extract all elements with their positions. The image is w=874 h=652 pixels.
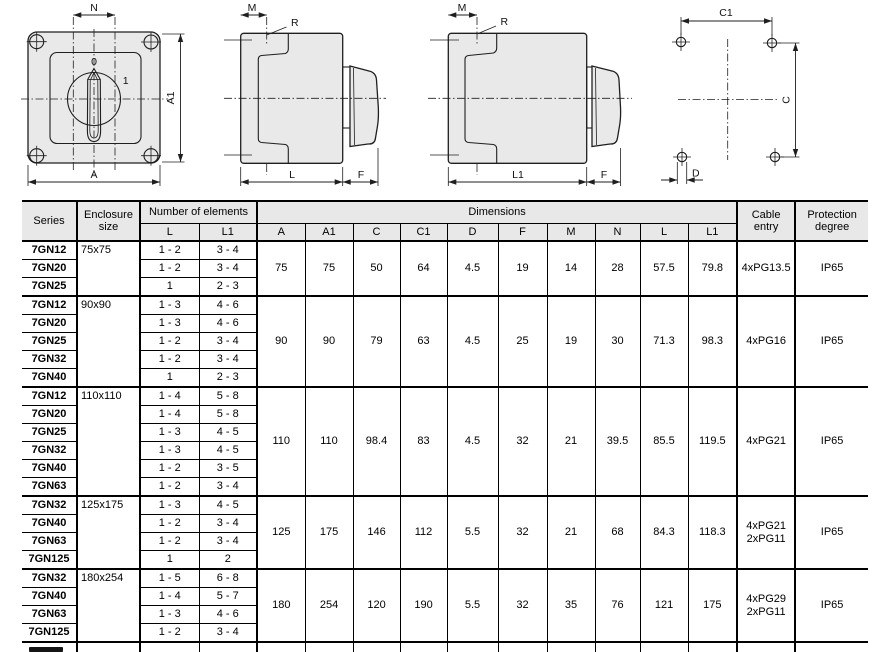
col-header-d: D (447, 224, 498, 242)
side-view-l1-drawing: M R L1 F (422, 2, 652, 194)
dim-l-cell: 71.3 (640, 296, 688, 387)
dim-c1-cell: 64 (400, 241, 447, 296)
series-cell: 7GN32 (22, 569, 77, 588)
dim-a-cell: 110 (257, 387, 305, 496)
dim-l-cell: 84.3 (640, 496, 688, 569)
position-0-label: 0 (91, 56, 97, 68)
side-l-dim-l-label: L (289, 169, 295, 181)
series-cell: 7GN25 (22, 424, 77, 442)
series-cell: 7GN40 (22, 460, 77, 478)
dim-a-cell: 125 (257, 496, 305, 569)
table-row: 7GN1290x901 - 34 - 6909079634.525193071.… (22, 296, 868, 315)
series-cell: 7GN32 (22, 496, 77, 515)
enclosure-size-cell: 75x75 (77, 241, 140, 296)
protection-degree-cell: IP65 (795, 496, 868, 569)
elements-l1-cell: 5 - 8 (199, 387, 257, 406)
dimensions-table: Series Enclosure size Number of elements… (22, 200, 868, 652)
elements-l1-cell: 3 - 4 (199, 533, 257, 551)
dim-f-cell: 32 (498, 569, 547, 642)
elements-l-cell: 1 (140, 278, 199, 297)
series-cell: 7GN63 (22, 606, 77, 624)
series-cell: 7GN32 (22, 442, 77, 460)
dim-c1-cell: 63 (400, 296, 447, 387)
cable-entry-cell: 4xPG13.5 (737, 241, 795, 296)
series-cell: 7GN12 (22, 387, 77, 406)
elements-l1-cell: 3 - 4 (199, 351, 257, 369)
series-cell: 7GN12 (22, 296, 77, 315)
series-cell: 7GN12 (22, 241, 77, 260)
dim-c-cell: 146 (353, 496, 400, 569)
dim-c1-cell: 83 (400, 387, 447, 496)
cable-entry-cell: 4xPG21 2xPG11 (737, 496, 795, 569)
side-l1-dim-m-label: M (458, 2, 467, 14)
enclosure-size-cell: 90x90 (77, 296, 140, 387)
dim-m-cell: 21 (547, 496, 595, 569)
col-header-dim-l1: L1 (688, 224, 737, 242)
dim-c1-cell: 190 (400, 569, 447, 642)
series-cell: 7GN40 (22, 369, 77, 388)
table-row: 7GN32125x1751 - 34 - 51251751461125.5322… (22, 496, 868, 515)
dim-d-cell: 4.5 (447, 296, 498, 387)
series-cell: 7GN125 (22, 624, 77, 643)
col-header-l: L (140, 224, 199, 242)
elements-l-cell: 1 - 4 (140, 387, 199, 406)
col-header-c1: C1 (400, 224, 447, 242)
table-header: Series Enclosure size Number of elements… (22, 201, 868, 241)
series-cell: 7GN32 (22, 351, 77, 369)
dim-m-cell: 19 (547, 296, 595, 387)
clipped-cell (22, 642, 77, 652)
elements-l-cell: 1 - 2 (140, 260, 199, 278)
col-header-a: A (257, 224, 305, 242)
series-cell: 7GN20 (22, 260, 77, 278)
dim-n-cell: 76 (595, 569, 640, 642)
col-header-cable-entry: Cable entry (737, 201, 795, 241)
series-cell: 7GN40 (22, 588, 77, 606)
elements-l1-cell: 3 - 4 (199, 241, 257, 260)
protection-degree-cell: IP65 (795, 569, 868, 642)
dim-l-cell: 57.5 (640, 241, 688, 296)
elements-l-cell: 1 - 3 (140, 442, 199, 460)
dim-a-cell: 75 (257, 241, 305, 296)
elements-l1-cell: 2 - 3 (199, 278, 257, 297)
dimensions-table-wrap: Series Enclosure size Number of elements… (22, 200, 868, 652)
dim-a1-cell: 75 (305, 241, 353, 296)
clipped-cell (447, 642, 498, 652)
elements-l1-cell: 4 - 5 (199, 442, 257, 460)
clipped-cell (77, 642, 140, 652)
clipped-cell (640, 642, 688, 652)
elements-l1-cell: 3 - 4 (199, 478, 257, 497)
elements-l1-cell: 4 - 6 (199, 296, 257, 315)
series-cell: 7GN25 (22, 278, 77, 297)
elements-l-cell: 1 - 2 (140, 515, 199, 533)
enclosure-size-cell: 110x110 (77, 387, 140, 496)
dim-a1-cell: 110 (305, 387, 353, 496)
dim-m-cell: 14 (547, 241, 595, 296)
dim-n-cell: 68 (595, 496, 640, 569)
elements-l-cell: 1 (140, 369, 199, 388)
series-cell: 7GN20 (22, 315, 77, 333)
clipped-cell (595, 642, 640, 652)
side-l-dim-f-label: F (358, 169, 364, 181)
series-cell: 7GN63 (22, 533, 77, 551)
clipped-cell (737, 642, 795, 652)
elements-l-cell: 1 - 2 (140, 241, 199, 260)
series-cell: 7GN20 (22, 406, 77, 424)
elements-l1-cell: 3 - 4 (199, 515, 257, 533)
dim-l1-cell: 118.3 (688, 496, 737, 569)
dim-c-cell: 50 (353, 241, 400, 296)
elements-l-cell: 1 - 2 (140, 478, 199, 497)
col-header-number-of-elements: Number of elements (140, 201, 257, 224)
drill-dim-c1-label: C1 (719, 7, 733, 19)
dim-l1-cell: 175 (688, 569, 737, 642)
dim-c-cell: 98.4 (353, 387, 400, 496)
series-cell: 7GN40 (22, 515, 77, 533)
clipped-cell (400, 642, 447, 652)
elements-l-cell: 1 - 2 (140, 460, 199, 478)
elements-l-cell: 1 - 3 (140, 424, 199, 442)
dim-l1-cell: 98.3 (688, 296, 737, 387)
clipped-cell (688, 642, 737, 652)
elements-l-cell: 1 - 4 (140, 406, 199, 424)
clipped-cell (140, 642, 199, 652)
cable-entry-cell: 4xPG29 2xPG11 (737, 569, 795, 642)
dim-f-cell: 32 (498, 496, 547, 569)
elements-l1-cell: 4 - 5 (199, 424, 257, 442)
dim-n-cell: 30 (595, 296, 640, 387)
clipped-cell (795, 642, 868, 652)
elements-l-cell: 1 - 3 (140, 296, 199, 315)
elements-l-cell: 1 - 2 (140, 351, 199, 369)
dim-f-cell: 32 (498, 387, 547, 496)
elements-l1-cell: 2 (199, 551, 257, 570)
elements-l1-cell: 6 - 8 (199, 569, 257, 588)
elements-l-cell: 1 - 3 (140, 496, 199, 515)
series-cell: 7GN25 (22, 333, 77, 351)
side-l1-radius-label: R (501, 16, 509, 28)
side-l1-dim-f-label: F (601, 169, 607, 181)
dim-a-cell: 90 (257, 296, 305, 387)
dim-a-cell: 180 (257, 569, 305, 642)
dim-a1-cell: 175 (305, 496, 353, 569)
table-row: 7GN12110x1101 - 45 - 811011098.4834.5322… (22, 387, 868, 406)
drilling-plan-drawing: C1 C D (652, 2, 874, 194)
col-header-series: Series (22, 201, 77, 241)
side-l-dim-m-label: M (248, 2, 257, 14)
col-header-enclosure-size: Enclosure size (77, 201, 140, 241)
dim-l-cell: 121 (640, 569, 688, 642)
series-cell: 7GN63 (22, 478, 77, 497)
side-view-l-drawing: M R L F (222, 2, 422, 194)
elements-l1-cell: 4 - 6 (199, 315, 257, 333)
elements-l1-cell: 3 - 4 (199, 260, 257, 278)
dim-f-cell: 19 (498, 241, 547, 296)
enclosure-size-cell: 180x254 (77, 569, 140, 642)
clipped-cell (547, 642, 595, 652)
clipped-partial-row (22, 642, 868, 652)
protection-degree-cell: IP65 (795, 387, 868, 496)
dim-a1-cell: 90 (305, 296, 353, 387)
elements-l-cell: 1 - 5 (140, 569, 199, 588)
col-header-c: C (353, 224, 400, 242)
dim-d-cell: 5.5 (447, 496, 498, 569)
elements-l-cell: 1 - 3 (140, 606, 199, 624)
col-header-f: F (498, 224, 547, 242)
dim-d-cell: 4.5 (447, 241, 498, 296)
position-1-label: 1 (123, 75, 129, 87)
clipped-cell (257, 642, 305, 652)
cable-entry-cell: 4xPG21 (737, 387, 795, 496)
col-header-dimensions: Dimensions (257, 201, 737, 224)
cable-entry-cell: 4xPG16 (737, 296, 795, 387)
series-cell: 7GN125 (22, 551, 77, 570)
front-view-drawing: N A A1 0 1 (18, 2, 218, 194)
clipped-cell (305, 642, 353, 652)
elements-l-cell: 1 - 4 (140, 588, 199, 606)
dim-n-cell: 28 (595, 241, 640, 296)
dim-c-cell: 79 (353, 296, 400, 387)
elements-l1-cell: 5 - 8 (199, 406, 257, 424)
dim-m-cell: 35 (547, 569, 595, 642)
clipped-cell (353, 642, 400, 652)
col-header-protection-degree: Protection degree (795, 201, 868, 241)
table-row: 7GN32180x2541 - 56 - 81802541201905.5323… (22, 569, 868, 588)
col-header-l1: L1 (199, 224, 257, 242)
elements-l1-cell: 5 - 7 (199, 588, 257, 606)
protection-degree-cell: IP65 (795, 296, 868, 387)
dim-f-cell: 25 (498, 296, 547, 387)
elements-l-cell: 1 - 2 (140, 333, 199, 351)
elements-l1-cell: 3 - 4 (199, 624, 257, 643)
side-l1-dim-l1-label: L1 (512, 169, 524, 181)
elements-l-cell: 1 - 3 (140, 315, 199, 333)
col-header-m: M (547, 224, 595, 242)
elements-l1-cell: 2 - 3 (199, 369, 257, 388)
elements-l1-cell: 3 - 5 (199, 460, 257, 478)
side-l-radius-label: R (291, 17, 299, 29)
table-row: 7GN1275x751 - 23 - 4757550644.519142857.… (22, 241, 868, 260)
drill-dim-d-label: D (692, 168, 700, 180)
drill-dim-c-label: C (781, 96, 793, 104)
protection-degree-cell: IP65 (795, 241, 868, 296)
col-header-n: N (595, 224, 640, 242)
dim-l1-cell: 79.8 (688, 241, 737, 296)
dim-d-cell: 5.5 (447, 569, 498, 642)
front-dim-n-label: N (90, 2, 98, 14)
dim-c-cell: 120 (353, 569, 400, 642)
enclosure-size-cell: 125x175 (77, 496, 140, 569)
dim-c1-cell: 112 (400, 496, 447, 569)
dim-m-cell: 21 (547, 387, 595, 496)
dim-l-cell: 85.5 (640, 387, 688, 496)
elements-l1-cell: 4 - 6 (199, 606, 257, 624)
dim-a1-cell: 254 (305, 569, 353, 642)
table-body: 7GN1275x751 - 23 - 4757550644.519142857.… (22, 241, 868, 652)
elements-l-cell: 1 - 2 (140, 533, 199, 551)
front-dim-a-label: A (90, 169, 97, 181)
dim-n-cell: 39.5 (595, 387, 640, 496)
elements-l1-cell: 3 - 4 (199, 333, 257, 351)
dim-l1-cell: 119.5 (688, 387, 737, 496)
col-header-a1: A1 (305, 224, 353, 242)
elements-l-cell: 1 (140, 551, 199, 570)
dim-d-cell: 4.5 (447, 387, 498, 496)
col-header-dim-l: L (640, 224, 688, 242)
clipped-cell (498, 642, 547, 652)
elements-l1-cell: 4 - 5 (199, 496, 257, 515)
front-dim-a1-label: A1 (165, 91, 177, 104)
clipped-cell (199, 642, 257, 652)
elements-l-cell: 1 - 2 (140, 624, 199, 643)
